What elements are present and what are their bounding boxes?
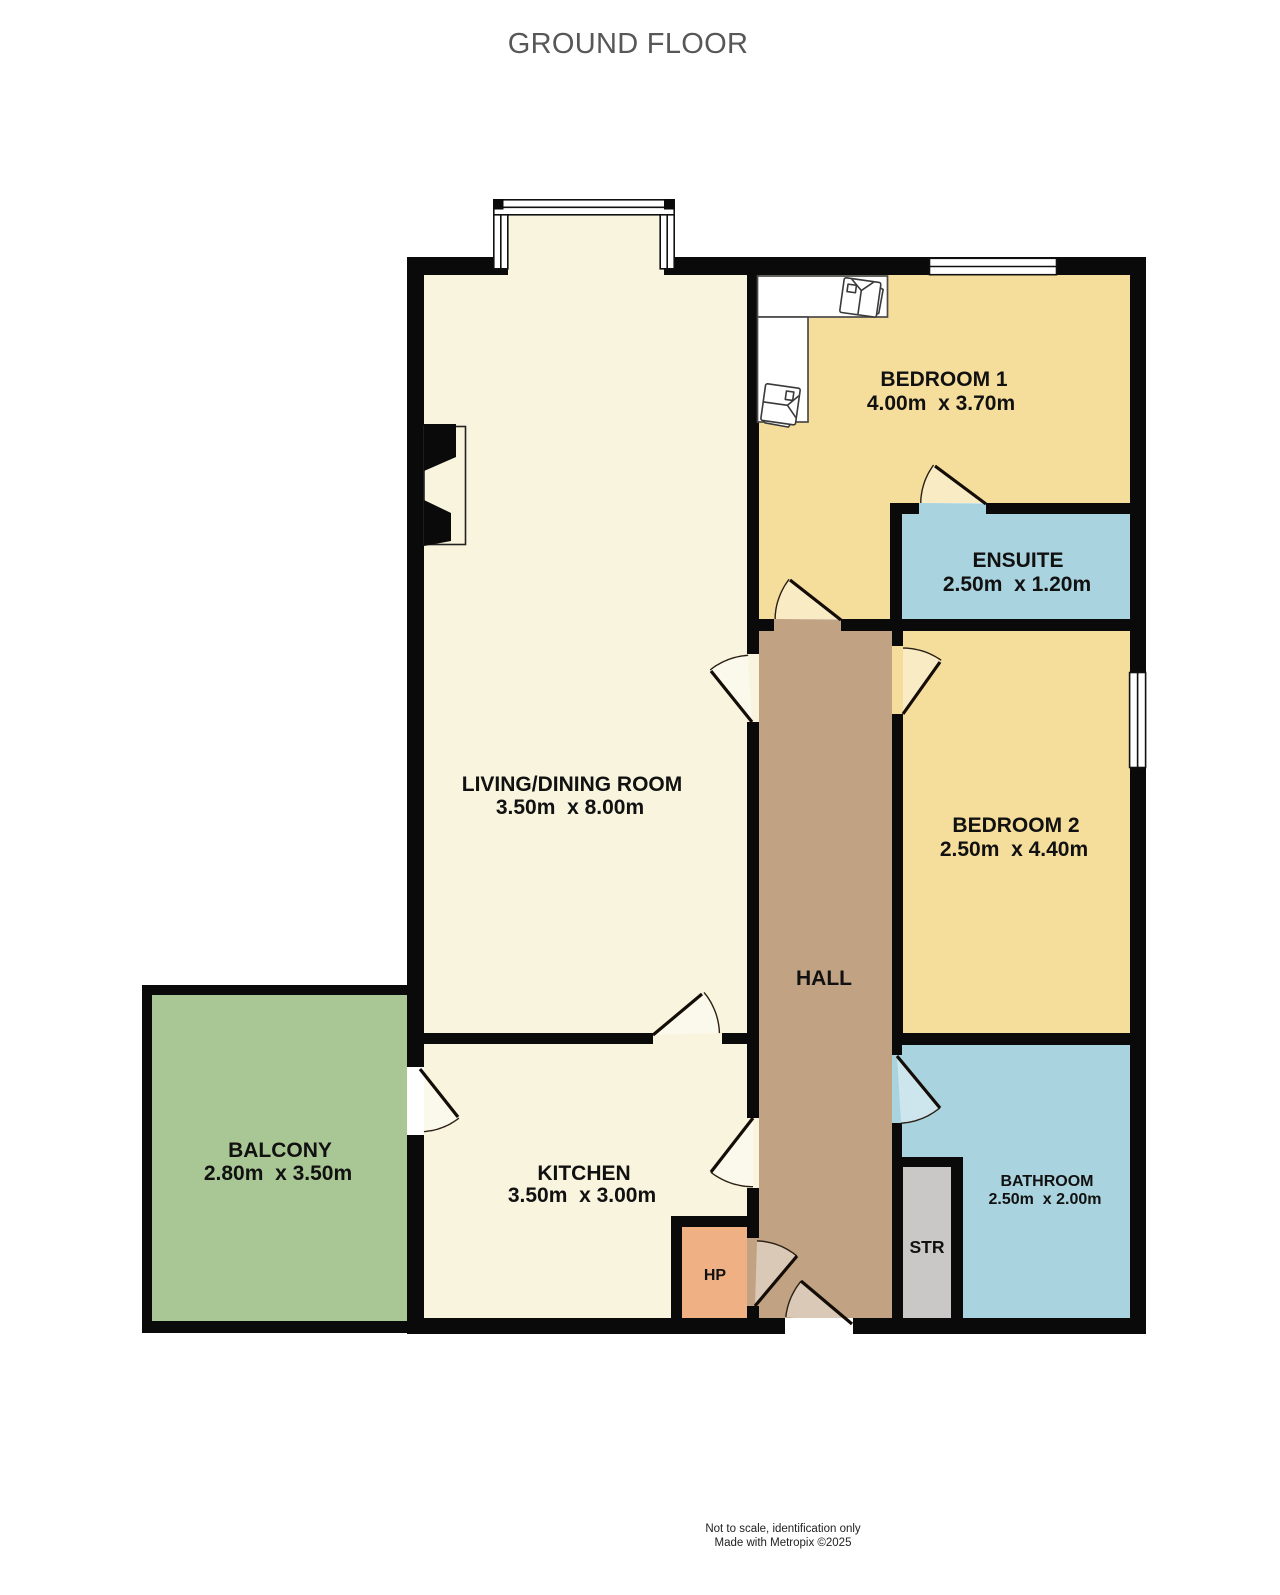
svg-text:3.50m x 3.00m: 3.50m x 3.00m: [508, 1184, 656, 1207]
svg-text:KITCHEN: KITCHEN: [537, 1162, 630, 1185]
svg-text:BALCONY: BALCONY: [228, 1139, 332, 1162]
svg-text:BEDROOM 1: BEDROOM 1: [880, 368, 1008, 391]
svg-text:Not to scale, identification o: Not to scale, identification only: [705, 1523, 861, 1535]
svg-text:ENSUITE: ENSUITE: [972, 549, 1063, 572]
svg-text:HP: HP: [704, 1267, 727, 1284]
svg-text:GROUND FLOOR: GROUND FLOOR: [508, 28, 748, 60]
svg-text:STR: STR: [910, 1237, 945, 1257]
svg-text:2.50m x 2.00m: 2.50m x 2.00m: [989, 1191, 1102, 1208]
svg-text:4.00m x 3.70m: 4.00m x 3.70m: [867, 392, 1015, 415]
svg-text:Made with Metropix ©2025: Made with Metropix ©2025: [715, 1537, 852, 1549]
svg-text:2.50m x 4.40m: 2.50m x 4.40m: [940, 838, 1088, 861]
svg-text:BATHROOM: BATHROOM: [1000, 1173, 1093, 1190]
svg-text:2.80m x 3.50m: 2.80m x 3.50m: [204, 1162, 352, 1185]
svg-text:HALL: HALL: [796, 967, 852, 990]
svg-text:3.50m x 8.00m: 3.50m x 8.00m: [496, 796, 644, 819]
svg-text:LIVING/DINING ROOM: LIVING/DINING ROOM: [462, 773, 683, 796]
svg-text:BEDROOM 2: BEDROOM 2: [952, 814, 1079, 837]
svg-text:2.50m x 1.20m: 2.50m x 1.20m: [943, 573, 1091, 596]
